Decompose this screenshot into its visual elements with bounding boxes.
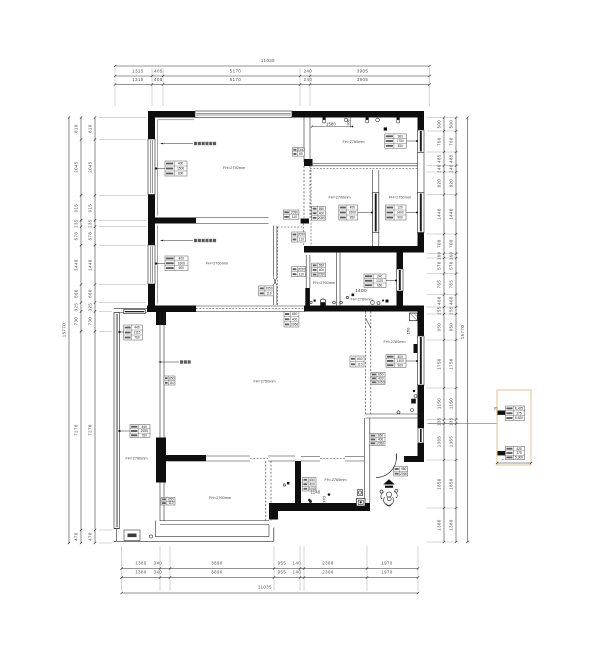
svg-text:1440: 1440 <box>88 259 93 271</box>
svg-text:820: 820 <box>437 179 442 188</box>
svg-text:11035: 11035 <box>258 585 272 590</box>
svg-text:2050: 2050 <box>318 273 325 277</box>
svg-text:400: 400 <box>319 211 325 215</box>
svg-text:760: 760 <box>134 336 140 340</box>
svg-text:810: 810 <box>74 124 79 133</box>
svg-text:1380: 1380 <box>437 519 442 531</box>
svg-text:460: 460 <box>437 296 442 305</box>
svg-text:110: 110 <box>299 238 304 242</box>
svg-text:7278: 7278 <box>74 424 79 436</box>
svg-text:11035: 11035 <box>261 58 275 63</box>
svg-text:650: 650 <box>319 207 325 211</box>
svg-text:470: 470 <box>74 532 79 541</box>
svg-text:570: 570 <box>437 261 442 270</box>
svg-text:160: 160 <box>449 251 454 260</box>
svg-text:FH=2760mm: FH=2760mm <box>125 457 147 461</box>
svg-text:405: 405 <box>154 77 163 82</box>
svg-text:1315: 1315 <box>132 77 144 82</box>
svg-text:1370: 1370 <box>376 279 383 283</box>
svg-text:600: 600 <box>178 172 184 176</box>
svg-text:110: 110 <box>292 215 297 219</box>
svg-text:460: 460 <box>449 296 454 305</box>
svg-text:2050: 2050 <box>291 323 298 327</box>
svg-text:3905: 3905 <box>357 69 369 74</box>
svg-text:340: 340 <box>154 570 163 575</box>
svg-text:660: 660 <box>74 289 79 298</box>
svg-text:150: 150 <box>406 327 411 334</box>
svg-text:760: 760 <box>437 137 442 146</box>
svg-text:110: 110 <box>267 292 272 296</box>
svg-text:820: 820 <box>449 179 454 188</box>
svg-text:650: 650 <box>319 263 325 267</box>
svg-text:730: 730 <box>88 317 93 326</box>
svg-text:1750: 1750 <box>449 358 454 370</box>
svg-text:915: 915 <box>74 204 79 213</box>
svg-text:1440: 1440 <box>449 208 454 220</box>
svg-text:405: 405 <box>154 69 163 74</box>
svg-text:8.820: 8.820 <box>515 416 523 420</box>
svg-text:660: 660 <box>88 289 93 298</box>
svg-text:FH=2700mm: FH=2700mm <box>328 196 350 200</box>
svg-text:1850: 1850 <box>437 478 442 490</box>
svg-text:2050: 2050 <box>318 216 325 220</box>
svg-text:400: 400 <box>292 317 298 321</box>
svg-text:FH=2760mm: FH=2760mm <box>209 496 231 500</box>
svg-text:135: 135 <box>449 417 454 426</box>
svg-text:110: 110 <box>168 501 173 505</box>
svg-text:FH=2750mm: FH=2750mm <box>253 380 275 384</box>
svg-text:730: 730 <box>74 317 79 326</box>
svg-text:1580: 1580 <box>326 121 336 126</box>
svg-text:900: 900 <box>397 216 403 220</box>
svg-text:FH=2760mm: FH=2760mm <box>313 281 335 285</box>
svg-text:1400: 1400 <box>397 211 404 215</box>
svg-text:955: 955 <box>278 561 287 566</box>
svg-text:2050: 2050 <box>298 267 305 271</box>
svg-text:350: 350 <box>398 144 404 148</box>
svg-text:E.425: E.425 <box>515 407 524 411</box>
svg-text:368: 368 <box>346 120 350 126</box>
svg-text:1380: 1380 <box>135 570 147 575</box>
svg-text:110: 110 <box>357 362 362 366</box>
svg-text:FH=2760mm: FH=2760mm <box>350 298 372 302</box>
svg-text:950: 950 <box>350 216 356 220</box>
svg-text:FH=2765mm: FH=2765mm <box>324 478 346 482</box>
svg-text:1140: 1140 <box>311 490 321 495</box>
svg-text:235: 235 <box>74 219 79 228</box>
svg-text:650: 650 <box>169 376 175 380</box>
svg-text:950: 950 <box>449 323 454 332</box>
svg-text:400: 400 <box>350 206 356 210</box>
svg-text:470: 470 <box>88 532 93 541</box>
svg-text:765: 765 <box>449 280 454 289</box>
svg-text:2045: 2045 <box>88 161 93 173</box>
svg-text:2050: 2050 <box>377 380 384 384</box>
svg-text:1150: 1150 <box>437 398 442 409</box>
svg-text:915: 915 <box>88 204 93 213</box>
svg-text:5.900: 5.900 <box>515 456 523 460</box>
svg-text:1600: 1600 <box>178 261 185 265</box>
svg-text:500: 500 <box>437 120 442 129</box>
svg-text:1500: 1500 <box>349 211 356 215</box>
svg-text:3890: 3890 <box>211 561 223 566</box>
svg-text:980: 980 <box>401 467 407 471</box>
svg-text:255: 255 <box>437 306 442 315</box>
svg-text:160: 160 <box>437 251 442 260</box>
svg-text:1150: 1150 <box>449 398 454 409</box>
svg-text:60: 60 <box>299 152 303 156</box>
svg-text:485: 485 <box>437 154 442 163</box>
svg-text:650: 650 <box>309 478 315 482</box>
svg-text:255: 255 <box>449 306 454 315</box>
svg-text:240: 240 <box>377 274 383 278</box>
svg-text:1500: 1500 <box>177 167 184 171</box>
svg-text:375: 375 <box>516 411 522 415</box>
svg-text:325: 325 <box>88 303 93 312</box>
svg-text:485: 485 <box>449 154 454 163</box>
svg-text:600: 600 <box>179 266 185 270</box>
svg-text:400: 400 <box>179 257 185 261</box>
svg-text:1315: 1315 <box>132 69 144 74</box>
svg-text:1440: 1440 <box>437 208 442 220</box>
svg-text:235: 235 <box>88 219 93 228</box>
svg-text:765: 765 <box>437 280 442 289</box>
svg-text:110: 110 <box>169 381 174 385</box>
svg-text:2115: 2115 <box>134 331 141 335</box>
svg-text:15770: 15770 <box>460 325 465 340</box>
svg-text:650: 650 <box>292 312 298 316</box>
svg-text:760: 760 <box>449 137 454 146</box>
svg-text:760: 760 <box>142 433 148 437</box>
svg-text:650: 650 <box>357 357 363 361</box>
svg-text:678: 678 <box>74 232 79 241</box>
svg-text:FH=2760mm: FH=2760mm <box>342 140 364 144</box>
svg-text:2050: 2050 <box>298 233 305 237</box>
svg-text:360: 360 <box>398 134 404 138</box>
svg-text:1970: 1970 <box>381 570 393 575</box>
svg-text:900: 900 <box>398 363 404 367</box>
svg-text:1365: 1365 <box>437 436 442 448</box>
svg-text:110: 110 <box>299 272 304 276</box>
svg-text:FH=2760mm: FH=2760mm <box>383 340 405 344</box>
svg-text:2368: 2368 <box>322 570 334 575</box>
svg-text:1380: 1380 <box>449 519 454 531</box>
svg-text:1440: 1440 <box>74 259 79 271</box>
svg-text:240: 240 <box>304 77 313 82</box>
svg-text:955: 955 <box>278 570 287 575</box>
svg-text:135: 135 <box>437 417 442 426</box>
svg-text:325: 325 <box>74 303 79 312</box>
svg-text:5170: 5170 <box>230 77 242 82</box>
svg-text:FH=2760mm: FH=2760mm <box>206 262 228 266</box>
svg-text:2050: 2050 <box>377 441 384 445</box>
svg-text:3905: 3905 <box>357 77 369 82</box>
svg-text:240: 240 <box>304 69 313 74</box>
svg-text:FH=2760mm: FH=2760mm <box>389 196 411 200</box>
svg-text:440: 440 <box>134 326 140 330</box>
svg-text:1365: 1365 <box>449 436 454 448</box>
svg-text:140: 140 <box>293 561 302 566</box>
svg-text:370: 370 <box>322 495 327 502</box>
svg-text:570: 570 <box>449 261 454 270</box>
svg-text:700: 700 <box>449 239 454 248</box>
svg-text:1750: 1750 <box>437 358 442 370</box>
svg-text:2050: 2050 <box>291 210 298 214</box>
svg-text:400: 400 <box>309 482 315 486</box>
svg-text:2368: 2368 <box>322 561 334 566</box>
svg-text:1400: 1400 <box>355 288 367 294</box>
svg-text:15770: 15770 <box>62 323 67 338</box>
svg-text:400: 400 <box>178 162 184 166</box>
svg-text:1750: 1750 <box>397 139 404 143</box>
svg-text:140: 140 <box>293 570 302 575</box>
svg-text:2050: 2050 <box>400 472 407 476</box>
svg-text:1380: 1380 <box>135 561 147 566</box>
svg-text:400: 400 <box>319 268 325 272</box>
svg-text:120: 120 <box>397 206 403 210</box>
svg-text:5170: 5170 <box>230 69 242 74</box>
svg-text:1850: 1850 <box>449 478 454 490</box>
svg-text:950: 950 <box>377 283 383 287</box>
svg-text:FH=2750mm: FH=2750mm <box>223 166 245 170</box>
svg-text:7278: 7278 <box>88 424 93 436</box>
svg-text:2050: 2050 <box>266 287 273 291</box>
svg-text:20: 20 <box>494 407 498 411</box>
svg-text:340: 340 <box>154 561 163 566</box>
svg-text:810: 810 <box>88 124 93 133</box>
svg-text:678: 678 <box>88 232 93 241</box>
svg-text:2045: 2045 <box>74 161 79 173</box>
svg-text:1970: 1970 <box>381 561 393 566</box>
svg-text:3890: 3890 <box>211 570 223 575</box>
svg-text:500: 500 <box>449 120 454 129</box>
svg-text:950: 950 <box>437 323 442 332</box>
svg-text:700: 700 <box>437 239 442 248</box>
